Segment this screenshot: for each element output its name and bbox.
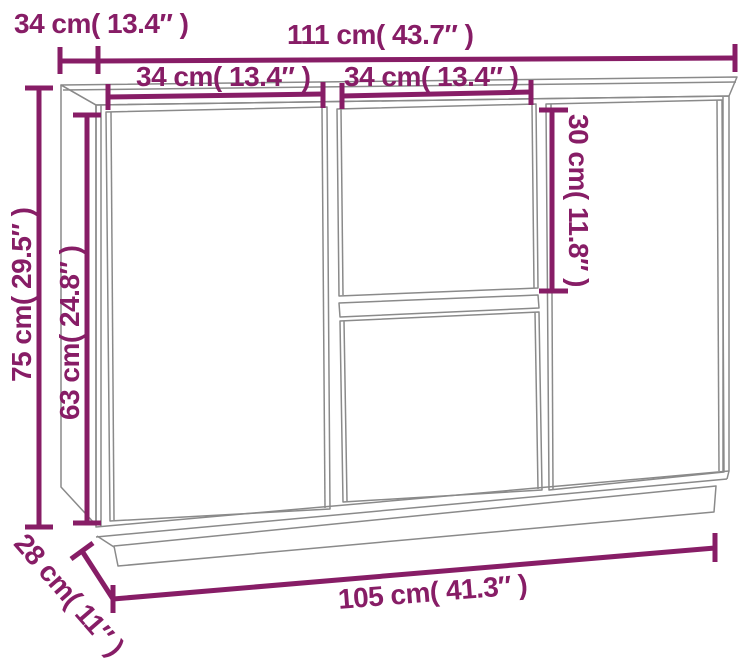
sideboard-drawing [0, 0, 750, 665]
dimension-lines [25, 44, 735, 613]
cabinet-top-drawer [337, 104, 538, 296]
cabinet-left-door [106, 107, 330, 521]
dim-drawer-height-label: 30 cm( 11.8″ ) [564, 114, 592, 287]
cabinet-drawing [61, 77, 737, 566]
dim-left-door-width-label: 34 cm( 13.4″ ) [136, 63, 311, 91]
dim-depth-top-label: 34 cm( 13.4″ ) [14, 10, 189, 38]
dim-door-height-label: 63 cm( 24.8″ ) [56, 245, 84, 420]
dim-depth-top [60, 47, 98, 74]
cabinet-lower-front [340, 312, 542, 502]
dim-drawer-width-label: 34 cm( 13.4″ ) [344, 63, 519, 91]
dim-total-height-label: 75 cm( 29.5″ ) [8, 207, 36, 382]
cabinet-front-frame [96, 96, 729, 537]
dimension-diagram: 34 cm( 13.4″ ) 111 cm( 43.7″ ) 34 cm( 13… [0, 0, 750, 665]
dim-width-total-label: 111 cm( 43.7″ ) [287, 21, 474, 49]
